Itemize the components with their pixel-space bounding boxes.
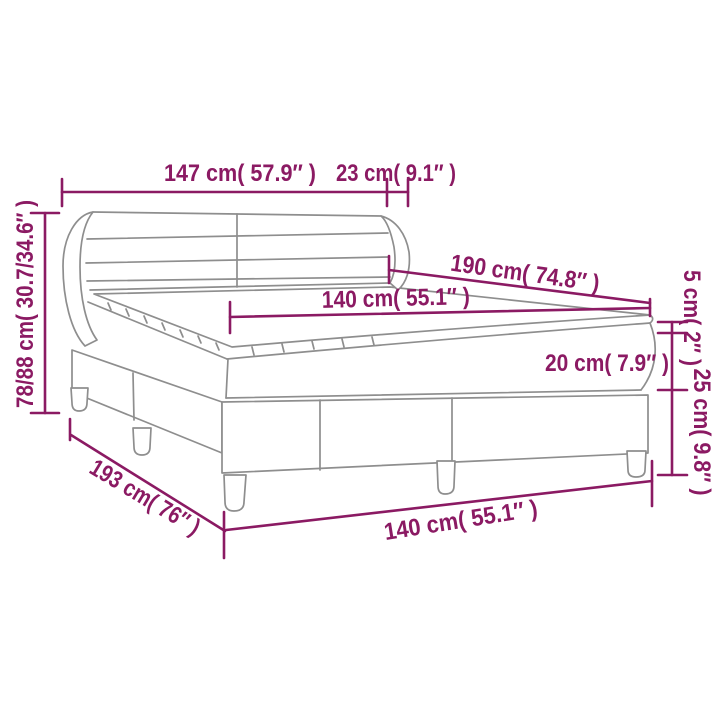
label-base-height: 25 cm( 9.8″ ): [688, 369, 715, 496]
bed-leg: [71, 388, 88, 411]
mattress-corner-edge: [226, 359, 228, 398]
dimension-labels: 147 cm( 57.9″ ) 23 cm( 9.1″ ) 190 cm( 74…: [12, 160, 715, 546]
bed-leg: [437, 461, 455, 494]
diagram-page: 147 cm( 57.9″ ) 23 cm( 9.1″ ) 190 cm( 74…: [0, 0, 720, 720]
label-topper-height: 5 cm( 2″ ): [678, 270, 705, 366]
headboard-right-cushion: [381, 216, 409, 290]
bed-leg: [133, 428, 151, 455]
label-headboard-depth: 23 cm( 9.1″ ): [336, 160, 456, 187]
label-total-height: 78/88 cm( 30.7/34.6″ ): [12, 200, 39, 408]
headboard-seam: [87, 277, 390, 281]
headboard-left-cushion: [63, 212, 97, 346]
bed-dimension-diagram: 147 cm( 57.9″ ) 23 cm( 9.1″ ) 190 cm( 74…: [0, 0, 720, 720]
label-mattress-height: 20 cm( 7.9″ ): [545, 350, 669, 377]
label-total-length: 193 cm( 76″ ): [85, 454, 205, 541]
bed-leg: [627, 451, 646, 477]
label-bed-length: 190 cm( 74.8″ ): [449, 250, 601, 298]
bed-leg: [224, 475, 246, 511]
base-seam: [133, 373, 134, 420]
base-front-face: [222, 395, 648, 473]
label-headboard-width: 147 cm( 57.9″ ): [164, 160, 316, 187]
label-mattress-width: 140 cm( 55.1″ ): [321, 283, 470, 314]
